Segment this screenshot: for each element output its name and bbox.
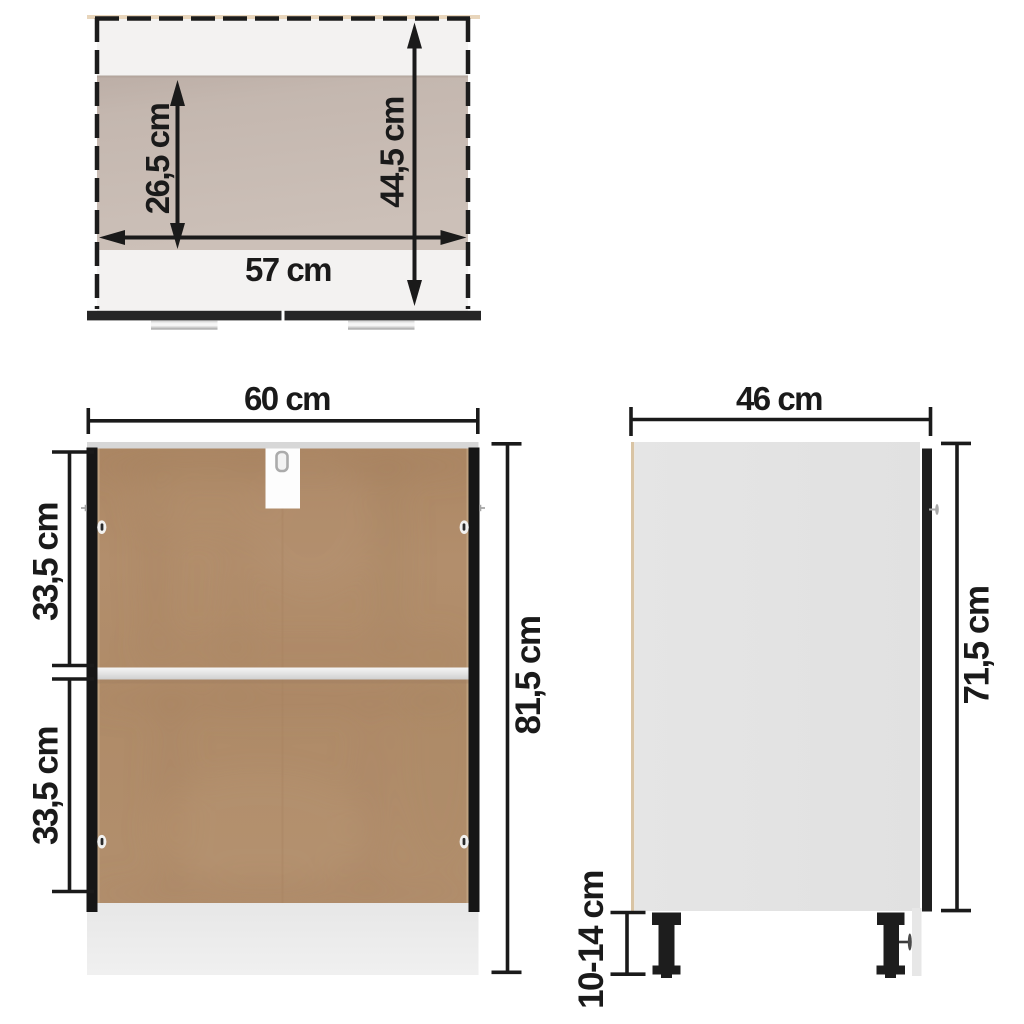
- svg-text:33,5 cm: 33,5 cm: [27, 503, 66, 621]
- svg-text:44,5 cm: 44,5 cm: [374, 97, 411, 208]
- svg-text:46 cm: 46 cm: [736, 380, 822, 417]
- svg-text:33,5 cm: 33,5 cm: [27, 727, 66, 845]
- svg-text:71,5 cm: 71,5 cm: [958, 587, 997, 705]
- svg-text:81,5 cm: 81,5 cm: [509, 617, 548, 735]
- svg-text:10-14 cm: 10-14 cm: [572, 871, 611, 1009]
- svg-text:60 cm: 60 cm: [244, 380, 330, 417]
- svg-text:57 cm: 57 cm: [245, 251, 331, 288]
- svg-text:26,5 cm: 26,5 cm: [139, 104, 176, 215]
